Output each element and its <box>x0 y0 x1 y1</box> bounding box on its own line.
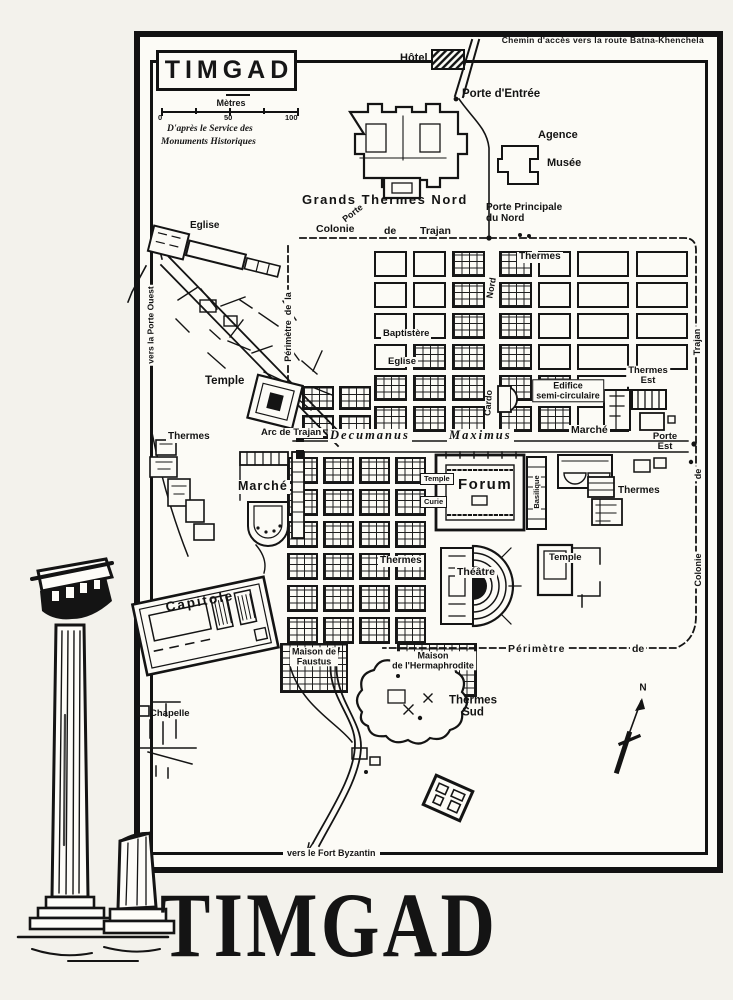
label-compass-n: N <box>639 684 646 695</box>
label-maison-de-faustus: Maison de Faustus <box>290 647 338 666</box>
route-access-note: Chemin d'accès vers la route Batna-Khenc… <box>420 35 704 45</box>
label-thermes-sud-grid: Thermes <box>378 556 424 567</box>
label-theatre: Théâtre <box>455 567 497 578</box>
scale-tick <box>263 108 265 114</box>
label-arc-de-trajan: Arc de Trajan <box>259 428 323 438</box>
label-cardo-nord-vert: Nord <box>485 277 498 299</box>
label-forum: Forum <box>458 477 512 493</box>
label-eglise-centre: Eglise <box>386 357 418 367</box>
column-base <box>30 918 114 929</box>
label-eglise-nw: Eglise <box>190 221 219 232</box>
label-musee: Musée <box>547 158 581 170</box>
label-vers-porte-ouest: vers la Porte Ouest <box>146 284 155 365</box>
attribution-line-2: Monuments Historiques <box>161 137 256 147</box>
scale-number-0: 0 <box>158 113 162 122</box>
label-agence: Agence <box>538 130 578 142</box>
label-trajan: Trajan <box>420 226 451 237</box>
attribution-line-1: D'après le Service des <box>167 124 253 134</box>
column-base <box>46 897 94 908</box>
column-base <box>38 908 104 918</box>
label-baptistere: Baptistère <box>381 329 431 339</box>
timgad-map-page: Chemin d'accès vers la route Batna-Khenc… <box>0 0 733 1000</box>
label-de-vert: de <box>694 467 704 482</box>
label-trajan-vert: Trajan <box>693 327 703 358</box>
label-marche-ouest: Marché <box>236 480 290 494</box>
label-thermes-sud: Thermes Sud <box>449 695 497 720</box>
label-decumanus: Decumanus <box>328 429 412 443</box>
label-curie: Curie <box>420 496 447 508</box>
ground-strokes <box>32 947 160 961</box>
scale-tick <box>195 108 197 114</box>
map-title: TIMGAD <box>160 56 294 85</box>
label-porte-principale: Porte Principale du Nord <box>486 203 562 225</box>
fort-byzantin-note: vers le Fort Byzantin <box>283 848 380 858</box>
label-cardo-vert: Cardo <box>483 390 495 417</box>
label-thermes-est: Thermes Est <box>626 366 670 387</box>
label-de-trajan-mid: de <box>384 226 396 237</box>
big-title: TIMGAD <box>160 872 498 978</box>
label-grands-thermes-nord: Grands Thermes Nord <box>302 193 468 207</box>
label-porte-entree: Porte d'Entrée <box>462 88 540 100</box>
stub-base <box>110 909 166 921</box>
column-shaft <box>52 625 88 897</box>
label-colonie: Colonie <box>316 224 355 235</box>
label-colonie-vert: Colonie <box>694 552 704 589</box>
label-porte-est: Porte Est <box>653 432 677 453</box>
legend-title-box: TIMGAD <box>156 50 297 91</box>
scale-number-100: 100 <box>285 113 298 122</box>
label-marche-est: Marché <box>569 425 610 436</box>
scale-unit-label: Mètres <box>196 98 266 108</box>
label-thermes-ouest: Thermes <box>166 432 212 443</box>
label-temple-se: Temple <box>547 553 584 563</box>
label-thermes-est2: Thermes <box>616 486 662 497</box>
label-maison-hermaphrodite: Maison de l'Hermaphrodite <box>390 651 476 670</box>
label-thermes-nord-grid: Thermes <box>517 252 563 263</box>
label-temple-forum: Temple <box>420 473 454 485</box>
label-maximus: Maximus <box>447 429 514 443</box>
label-perimetre-sud: Périmètre <box>506 644 567 655</box>
label-edifice-semi-circulaire: Edifice semi-circulaire <box>532 379 604 402</box>
label-hotel: Hôtel <box>400 53 428 65</box>
legend-rule <box>226 94 250 96</box>
label-basilique-vert: Basilique <box>533 473 541 510</box>
scale-number-50: 50 <box>224 113 232 122</box>
label-perimetre-ouest: Périmètre de la <box>284 290 294 364</box>
label-de-sud: de <box>630 644 646 655</box>
label-temple-ouest: Temple <box>205 375 244 387</box>
